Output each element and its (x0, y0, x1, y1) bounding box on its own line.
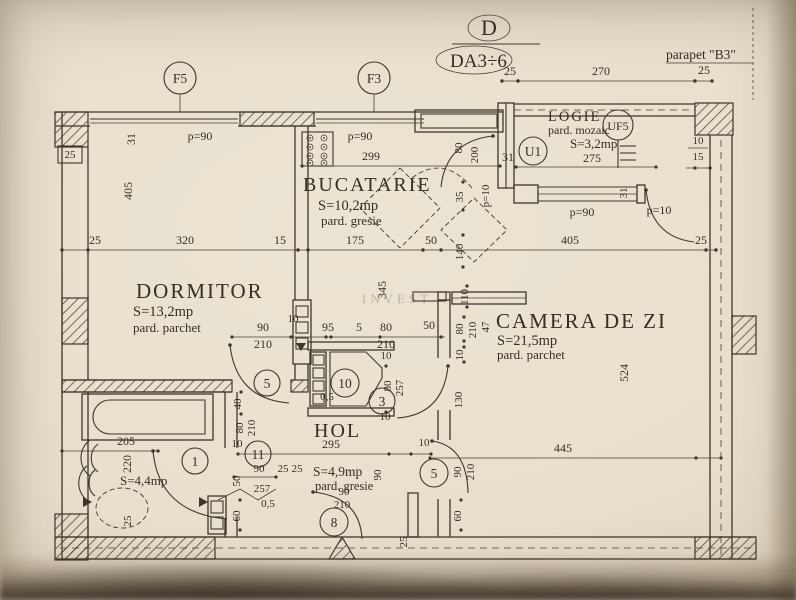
door-number-10: 10 (338, 376, 352, 391)
dim-10-logie: 10 (693, 135, 705, 147)
dim-130: 130 (453, 391, 465, 408)
dim-80-hol: 80 (380, 320, 392, 334)
logie-area: S=3,2mp (570, 136, 617, 151)
dim-p90-bucatarie: p=90 (348, 129, 373, 143)
scanned-floorplan-page: D DA3÷6 parapet "B3" 25 270 25 (0, 0, 796, 600)
dim-25-a: 25 (278, 463, 290, 475)
dim-10-camera: 10 (454, 349, 466, 361)
step-hol: 0,5 (320, 391, 334, 403)
dim-210-usa5b: 210 (465, 463, 477, 480)
baie-area: S=4,4mp (120, 473, 167, 488)
camera-zi-name: CAMERA DE ZI (496, 309, 667, 333)
marker-u1: U1 (525, 144, 542, 159)
dim-50-usa11: 50 (231, 475, 243, 487)
door-number-11: 11 (252, 447, 265, 462)
marker-uf5: UF5 (607, 119, 628, 133)
dim-25-b: 25 (292, 463, 304, 475)
step-intrare: 0,5 (261, 498, 275, 510)
window-marker-f3: F3 (367, 71, 382, 86)
dim-31-u1: 31 (502, 150, 514, 164)
dim-35: 35 (454, 191, 466, 203)
bucatarie-area: S=10,2mp (318, 198, 378, 214)
door-number-5b: 5 (431, 466, 438, 481)
dim-295-hol: 295 (322, 437, 340, 451)
door-number-8: 8 (331, 515, 338, 530)
dim-200-usa-logie: 200 (469, 146, 481, 163)
dim-5: 5 (356, 320, 362, 334)
dim-40: 40 (232, 398, 244, 410)
dim-60-camera: 60 (452, 510, 464, 522)
header: D DA3÷6 parapet "B3" 25 270 25 (436, 8, 753, 100)
dim-p10-logie: p=10 (647, 203, 672, 217)
dim-320: 320 (176, 233, 194, 247)
dim-110: 110 (459, 288, 471, 305)
dim-210-usa-dormitor: 210 (254, 337, 272, 351)
floorplan-svg: D DA3÷6 parapet "B3" 25 270 25 (0, 0, 796, 600)
dim-p10-usa-logie: p=10 (480, 184, 492, 207)
watermark: INVEST (362, 291, 432, 306)
window-marker-f5: F5 (173, 71, 188, 86)
dim-10-usa3-jos: 10 (380, 411, 392, 423)
dim-405-left: 405 (121, 182, 135, 200)
dim-405-mid: 405 (561, 233, 579, 247)
burner-icons (307, 135, 327, 166)
dim-80-usa3: 80 (382, 380, 394, 392)
dim-299: 299 (362, 149, 380, 163)
dim-top-mid: 270 (592, 64, 610, 78)
dim-top-left: 25 (504, 64, 516, 78)
dim-257-usa3: 257 (394, 379, 406, 396)
dim-524: 524 (617, 364, 631, 382)
dormitor-name: DORMITOR (136, 279, 264, 303)
dormitor-floor: pard. parchet (133, 320, 201, 335)
dim-25-mid-right: 25 (695, 233, 707, 247)
dormitor-area: S=13,2mp (133, 304, 193, 320)
dim-p90-logie: p=90 (570, 205, 595, 219)
dim-205: 205 (117, 434, 135, 448)
dim-25-mid-left: 25 (89, 233, 101, 247)
dim-25-baie: 25 (122, 515, 134, 527)
door-number-1: 1 (192, 454, 199, 469)
dim-31-logie: 31 (618, 188, 630, 199)
dim-top-right: 25 (698, 63, 710, 77)
dim-257-usa11: 257 (254, 483, 271, 495)
dim-50-mid: 50 (425, 233, 437, 247)
dim-10-usa5b: 10 (419, 437, 431, 449)
dim-80-usa-logie: 80 (453, 142, 465, 154)
dim-210-usa8: 210 (334, 499, 351, 511)
dim-90-usa11: 90 (254, 463, 266, 475)
logie-floor: pard. mozaic (548, 123, 610, 137)
dim-31-left: 31 (124, 133, 138, 145)
dim-80-usa1: 80 (234, 422, 246, 434)
dim-210-hol: 210 (377, 337, 395, 351)
bucatarie-floor: pard. gresie (321, 213, 382, 228)
dim-210-camera: 210 (467, 321, 479, 338)
door-number-5a: 5 (264, 376, 271, 391)
dim-445: 445 (554, 441, 572, 455)
door-number-3: 3 (379, 394, 386, 409)
dim-15-mid: 15 (274, 233, 286, 247)
dim-60-baie: 60 (231, 510, 243, 522)
dim-220: 220 (120, 455, 134, 473)
dim-140: 140 (454, 243, 466, 260)
dim-47: 47 (480, 321, 492, 333)
dim-15-logie: 15 (693, 151, 705, 163)
dim-25-box: 25 (65, 149, 77, 161)
dim-80-camera: 80 (454, 323, 466, 335)
dim-90-usa5b: 90 (452, 466, 464, 478)
parapet-label: parapet "B3" (666, 47, 736, 62)
plan-letter: D (481, 15, 497, 40)
dim-90-usa8: 90 (339, 486, 351, 498)
dim-275: 275 (583, 151, 601, 165)
dim-25-zid-jos: 25 (398, 536, 410, 548)
dim-90-usa-dormitor: 90 (257, 320, 269, 334)
dim-10-hol: 10 (288, 313, 300, 325)
dim-175: 175 (346, 233, 364, 247)
dim-50-hol: 50 (423, 318, 435, 332)
dim-10-usa3-sus: 10 (381, 350, 393, 362)
hol-intrare-area: S=4,9mp (313, 464, 362, 479)
bathtub (82, 394, 213, 440)
dim-90-rot-intrare: 90 (372, 469, 384, 481)
camera-zi-floor: pard. parchet (497, 347, 565, 362)
bucatarie-name: BUCATARIE (303, 174, 432, 196)
dim-10-usa1: 10 (232, 438, 244, 450)
dim-p90-dormitor: p=90 (188, 129, 213, 143)
dim-95: 95 (322, 320, 334, 334)
plan-code: DA3÷6 (450, 51, 507, 72)
dim-210-usa1: 210 (246, 419, 258, 436)
